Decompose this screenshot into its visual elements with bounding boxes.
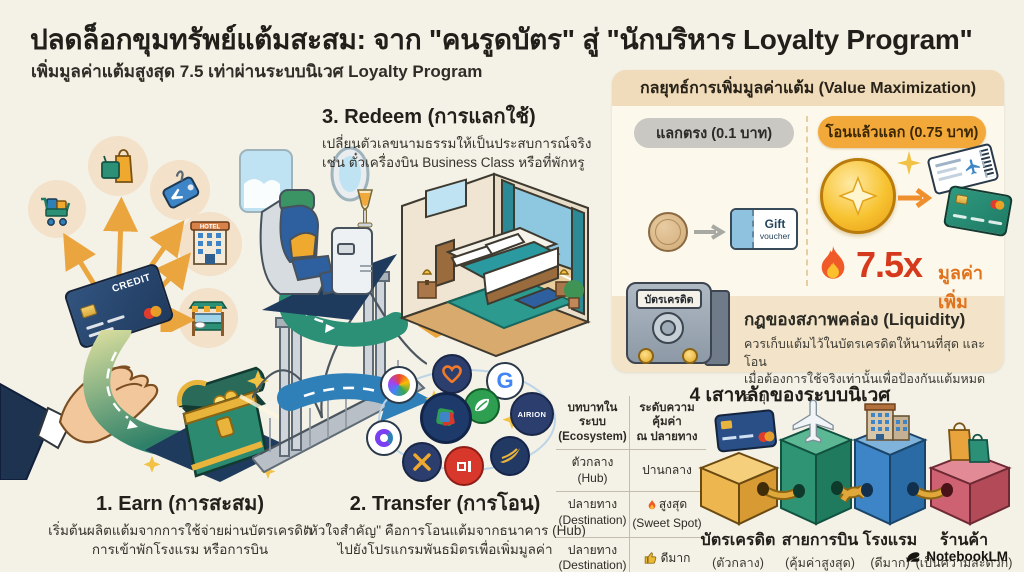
partner-flower-logo [380,366,418,404]
hotel-room-icon [388,162,593,362]
partner-heart-logo [432,354,472,394]
panel-divider [806,116,808,286]
thumbs-up-icon [644,551,658,565]
ecosystem-table: บทบาทในระบบ (Ecosystem) ระดับความคุ้มค่า… [556,396,706,572]
step-redeem-line1: เปลี่ยนตัวเลขนามธรรมให้เป็นประสบการณ์จริ… [322,135,592,154]
step-earn: 1. Earn (การสะสม) เริ่มต้นผลิตแต้มจากการ… [35,487,325,559]
page-title: ปลดล็อกขุมทรัพย์แต้มสะสม: จาก "คนรูดบัตร… [30,18,1010,62]
table-col1-header: บทบาทในระบบ [558,401,627,430]
step-transfer-line2: ไปยังโปรแกรมพันธมิตรเพื่อเพิ่มมูลค่า [300,541,590,560]
orange-arrow-icon [898,188,934,208]
safe-icon: บัตรเครดิต [626,282,730,370]
voucher-text-2: voucher [760,231,790,241]
coin-sparkle [896,150,922,176]
notebooklm-logo [905,551,921,563]
table-row: ตัวกลาง (Hub) ปานกลาง [556,449,706,491]
table-col2-header: ระดับความคุ้มค่า [632,401,702,430]
card-chip [80,304,98,319]
safe-knob-1 [638,348,654,364]
plain-coin-icon [648,212,688,252]
partner-airion-logo: AIRION [510,392,554,436]
partner-red-logo [444,446,484,486]
liquidity-section: บัตรเครดิต กฎของสภาพคล่อง (Liquidity) คว… [612,296,1004,372]
flame-icon-big [816,244,850,288]
step-redeem-title: 3. Redeem (การแลกใช้) [322,100,592,132]
direct-redeem-pill: แลกตรง (0.1 บาท) [634,118,794,148]
value-panel-title: กลยุทธ์การเพิ่มมูลค่าแต้ม (Value Maximiz… [612,70,1004,106]
page-subtitle: เพิ่มมูลค่าแต้มสูงสุด 7.5 เท่าผ่านระบบนิ… [31,58,631,85]
gift-voucher-icon: Gift voucher [730,208,798,250]
liquidity-title: กฎของสภาพคล่อง (Liquidity) [744,306,996,333]
partner-x-logo [402,442,442,482]
step-redeem: 3. Redeem (การแลกใช้) เปลี่ยนตัวเลขนามธร… [322,100,592,172]
watermark: NotebookLM [905,549,1008,564]
partner-wing-logo [490,436,530,476]
step-earn-title: 1. Earn (การสะสม) [35,487,325,519]
step-transfer: 2. Transfer (การโอน) "หัวใจสำคัญ" คือการ… [300,487,590,559]
step-redeem-line2: เช่น ตั๋วเครื่องบิน Business Class หรือท… [322,154,592,173]
safe-label: บัตรเครดิต [644,291,693,308]
partner-center-logo [420,392,472,444]
watermark-text: NotebookLM [926,549,1008,564]
transfer-redeem-pill: โอนแล้วแลก (0.75 บาท) [818,116,986,148]
table-row: ปลายทาง (Destination) สูงสุด (Sweet Spot… [556,491,706,536]
multiplier-value: 7.5x [856,244,922,286]
flame-icon-small [647,499,657,512]
liquidity-line1: ควรเก็บแต้มไว้ในบัตรเครดิตให้นานที่สุด แ… [744,336,996,371]
card-brand-mark [142,304,163,320]
green-card-icon [943,185,1013,237]
safe-knob-2 [682,348,698,364]
partner-cluster: G AIRION [372,358,562,486]
credit-card-text: CREDIT [111,272,153,295]
coin-star [838,176,878,216]
pillar-boxes [693,398,1015,530]
infographic-canvas: ปลดล็อกขุมทรัพย์แต้มสะสม: จาก "คนรูดบัตร… [0,0,1024,572]
gray-arrow-icon [694,224,728,240]
value-panel: กลยุทธ์การเพิ่มมูลค่าแต้ม (Value Maximiz… [612,70,1004,372]
step-earn-line1: เริ่มต้นผลิตแต้มจากการใช้จ่ายผ่านบัตรเคร… [35,522,325,541]
safe-dial [652,312,684,344]
step-earn-line2: การเข้าพักโรงแรม หรือการบิน [35,541,325,560]
step-transfer-line1: "หัวใจสำคัญ" คือการโอนแต้มจากธนาคาร (Hub… [300,522,590,541]
voucher-stripe [732,210,754,248]
voucher-text-1: Gift [765,217,786,231]
value-panel-body: แลกตรง (0.1 บาท) Gift voucher โอนแล้วแลก… [612,106,1004,296]
partner-ring-logo [366,420,402,456]
table-row: ปลายทาง (Destination) ดีมาก [556,537,706,572]
step-transfer-title: 2. Transfer (การโอน) [300,487,590,519]
